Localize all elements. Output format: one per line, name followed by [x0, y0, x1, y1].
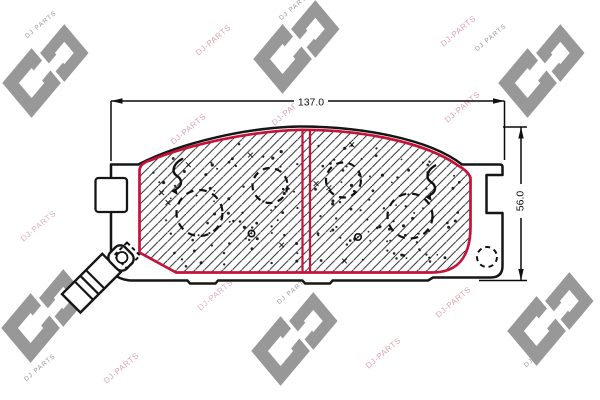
svg-text:137.0: 137.0 [298, 97, 324, 109]
svg-text:56.0: 56.0 [515, 191, 527, 212]
